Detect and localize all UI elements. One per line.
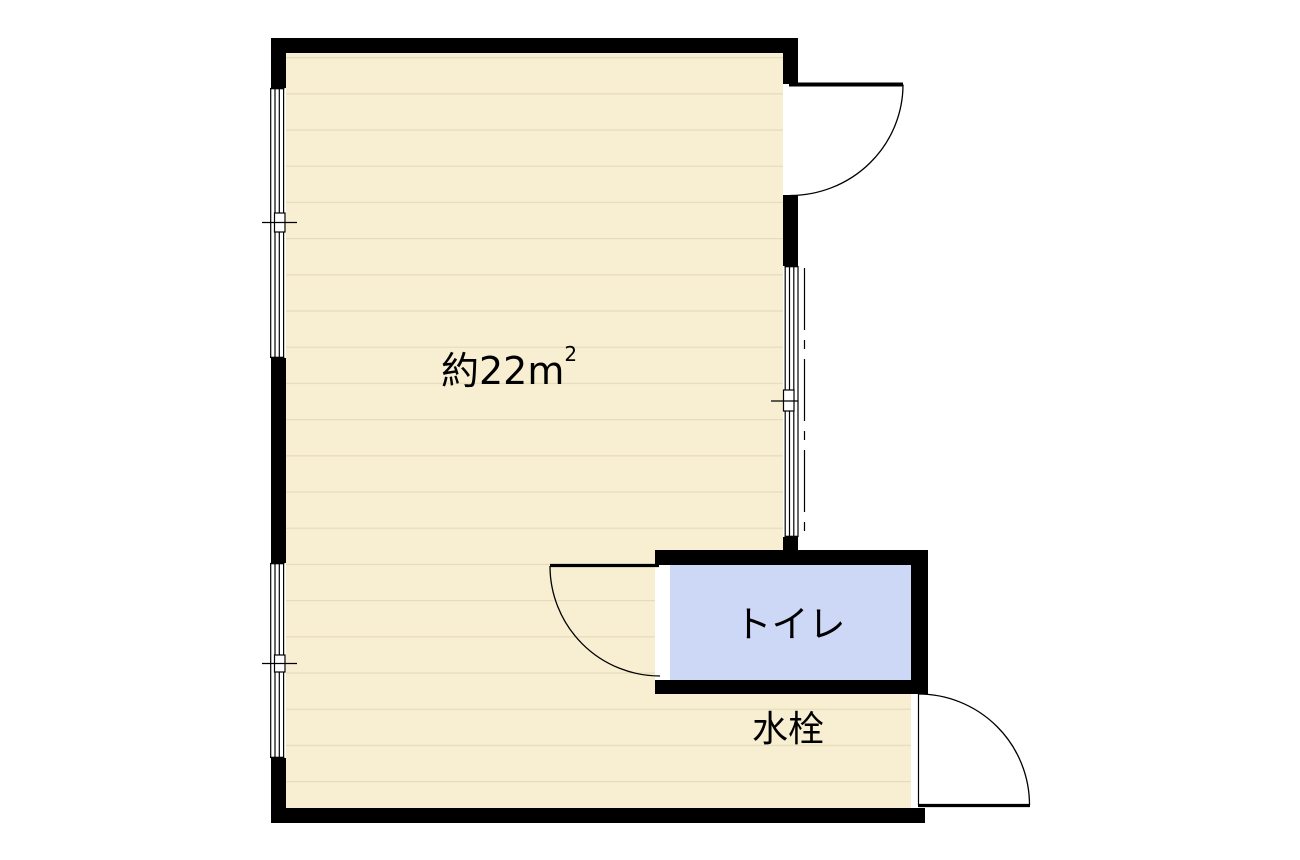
area-label-base: 約22m [441,349,564,393]
area-label: 約22m2 [441,342,577,393]
wall-right-lower [783,537,798,565]
floor-plan-drawing: 約22m2 トイレ 水栓 [0,0,1300,860]
door-swing-arc [919,694,1030,805]
wall-left-upper [271,38,286,88]
wall-right-upper [783,38,798,84]
main-room [286,53,911,808]
door-bottom-right [918,694,1030,806]
toilet-label: トイレ [735,603,846,646]
area-label-superscript: 2 [564,342,577,366]
door-top-right [789,85,903,196]
wall-right-middle [783,195,798,266]
wall-top [271,38,798,53]
floor-plank-lines [286,53,911,808]
floor-plan-page: 約22m2 トイレ 水栓 [0,0,1300,860]
wall-left-middle [271,358,286,563]
water-tap-label: 水栓 [752,709,824,750]
toilet-doorway-gap [655,565,670,680]
toilet-wall-bottom [655,680,928,694]
door-swing-arc [790,85,903,196]
toilet-wall-right [911,550,928,694]
wall-bottom [271,808,925,823]
